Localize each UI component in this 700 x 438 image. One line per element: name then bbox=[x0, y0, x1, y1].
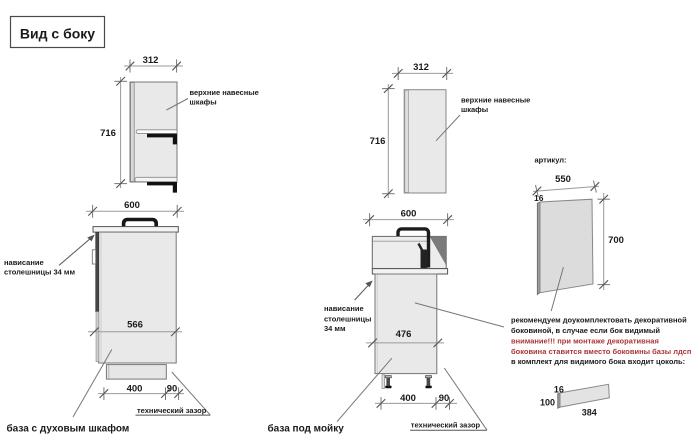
svg-text:312: 312 bbox=[413, 62, 429, 73]
svg-text:верхние навесные: верхние навесные bbox=[190, 88, 259, 97]
svg-text:боковиной, в случае если бок в: боковиной, в случае если бок видимый bbox=[511, 326, 660, 335]
svg-text:верхние навесные: верхние навесные bbox=[461, 95, 530, 104]
svg-text:90: 90 bbox=[167, 384, 178, 395]
svg-text:в комплект для видимого бока в: в комплект для видимого бока входит цоко… bbox=[511, 357, 685, 366]
svg-text:технический зазор: технический зазор bbox=[411, 421, 481, 430]
svg-text:550: 550 bbox=[555, 174, 571, 185]
svg-text:700: 700 bbox=[608, 235, 624, 246]
svg-text:600: 600 bbox=[401, 209, 417, 220]
svg-text:34 мм: 34 мм bbox=[324, 324, 346, 333]
svg-text:шкафы: шкафы bbox=[190, 98, 217, 107]
svg-text:нависание: нависание bbox=[324, 304, 364, 313]
svg-text:312: 312 bbox=[143, 55, 159, 66]
svg-text:столешницы 34 мм: столешницы 34 мм bbox=[4, 268, 75, 277]
svg-text:шкафы: шкафы bbox=[461, 105, 488, 114]
svg-text:476: 476 bbox=[396, 329, 412, 340]
svg-text:600: 600 bbox=[124, 200, 140, 211]
svg-text:400: 400 bbox=[127, 384, 143, 395]
svg-text:400: 400 bbox=[400, 393, 416, 404]
svg-text:боковина ставится вместо боков: боковина ставится вместо боковины базы л… bbox=[511, 347, 691, 356]
svg-text:нависание: нависание bbox=[4, 258, 44, 267]
svg-text:внимание!!! при монтаже декора: внимание!!! при монтаже декоративная bbox=[511, 336, 659, 345]
svg-text:артикул:: артикул: bbox=[535, 156, 567, 165]
svg-text:16: 16 bbox=[534, 193, 544, 203]
svg-text:столешницы: столешницы bbox=[324, 314, 371, 323]
svg-text:100: 100 bbox=[540, 397, 555, 407]
svg-text:566: 566 bbox=[127, 320, 143, 331]
svg-text:716: 716 bbox=[370, 136, 386, 147]
svg-text:Вид с боку: Вид с боку bbox=[20, 26, 95, 42]
svg-text:рекомендуем доукомплектовать д: рекомендуем доукомплектовать декоративно… bbox=[511, 316, 687, 325]
svg-text:716: 716 bbox=[100, 128, 116, 139]
svg-text:база под мойку: база под мойку bbox=[268, 423, 345, 435]
svg-text:16: 16 bbox=[554, 385, 564, 395]
svg-text:технический зазор: технический зазор bbox=[137, 406, 207, 415]
svg-text:база с духовым шкафом: база с духовым шкафом bbox=[7, 423, 130, 435]
svg-text:90: 90 bbox=[439, 393, 450, 404]
svg-text:384: 384 bbox=[582, 408, 597, 418]
